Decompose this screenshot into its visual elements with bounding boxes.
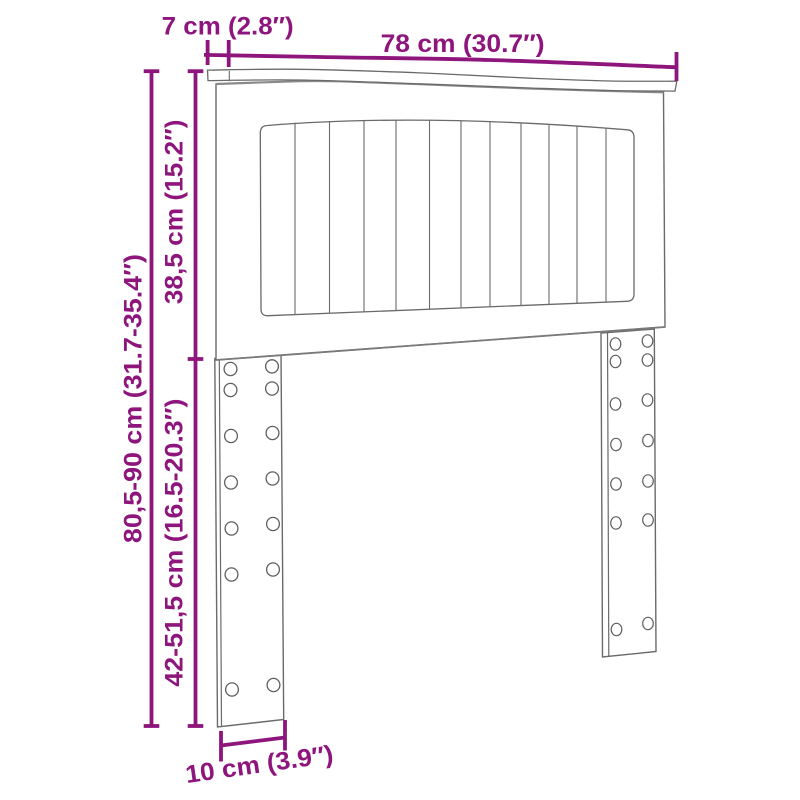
svg-text:7 cm (2.8″): 7 cm (2.8″): [162, 12, 294, 40]
svg-text:80,5-90 cm (31.7-35.4″): 80,5-90 cm (31.7-35.4″): [120, 254, 148, 543]
svg-text:78 cm (30.7″): 78 cm (30.7″): [381, 30, 545, 58]
svg-text:38,5 cm (15.2″): 38,5 cm (15.2″): [161, 120, 189, 305]
svg-text:42-51,5 cm (16.5-20.3″): 42-51,5 cm (16.5-20.3″): [161, 399, 189, 687]
